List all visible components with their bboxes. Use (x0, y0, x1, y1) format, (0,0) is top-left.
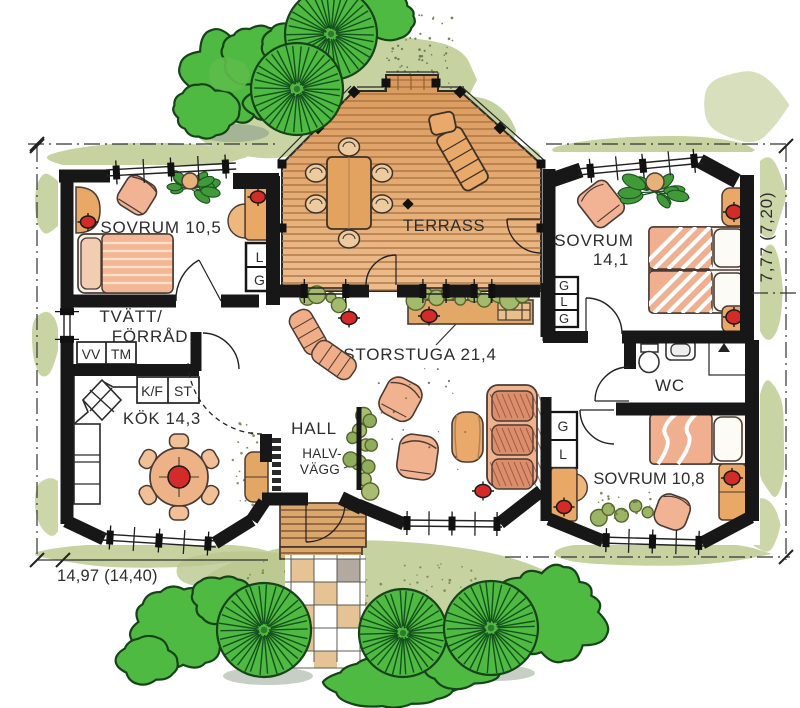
svg-text:TVÄTT/: TVÄTT/ (99, 307, 162, 326)
svg-text:14,97 (14,40): 14,97 (14,40) (57, 567, 158, 585)
svg-text:ST: ST (174, 383, 192, 399)
svg-text:14,1: 14,1 (593, 250, 629, 269)
svg-text:VV: VV (82, 346, 101, 362)
svg-text:L: L (256, 249, 264, 265)
svg-text:L: L (560, 294, 567, 309)
svg-text:K/F: K/F (141, 383, 163, 399)
svg-text:G: G (254, 272, 265, 288)
svg-text:7,77 (7,20): 7,77 (7,20) (757, 191, 776, 282)
svg-text:TM: TM (111, 346, 131, 362)
svg-text:TERRASS: TERRASS (403, 217, 485, 235)
svg-text:SOVRUM 10,8: SOVRUM 10,8 (593, 470, 704, 488)
svg-text:SOVRUM 10,5: SOVRUM 10,5 (100, 218, 221, 237)
svg-text:KÖK 14,3: KÖK 14,3 (123, 410, 201, 428)
svg-text:WC: WC (655, 376, 685, 395)
svg-text:VÄGG: VÄGG (300, 462, 340, 477)
svg-text:HALV-: HALV- (302, 446, 342, 461)
svg-text:G: G (558, 418, 569, 434)
svg-text:HALL: HALL (291, 419, 337, 438)
svg-text:STORSTUGA 21,4: STORSTUGA 21,4 (343, 345, 497, 364)
svg-text:G: G (559, 311, 569, 326)
svg-text:G: G (559, 278, 569, 293)
svg-text:SOVRUM: SOVRUM (554, 231, 633, 250)
svg-text:L: L (559, 446, 567, 462)
